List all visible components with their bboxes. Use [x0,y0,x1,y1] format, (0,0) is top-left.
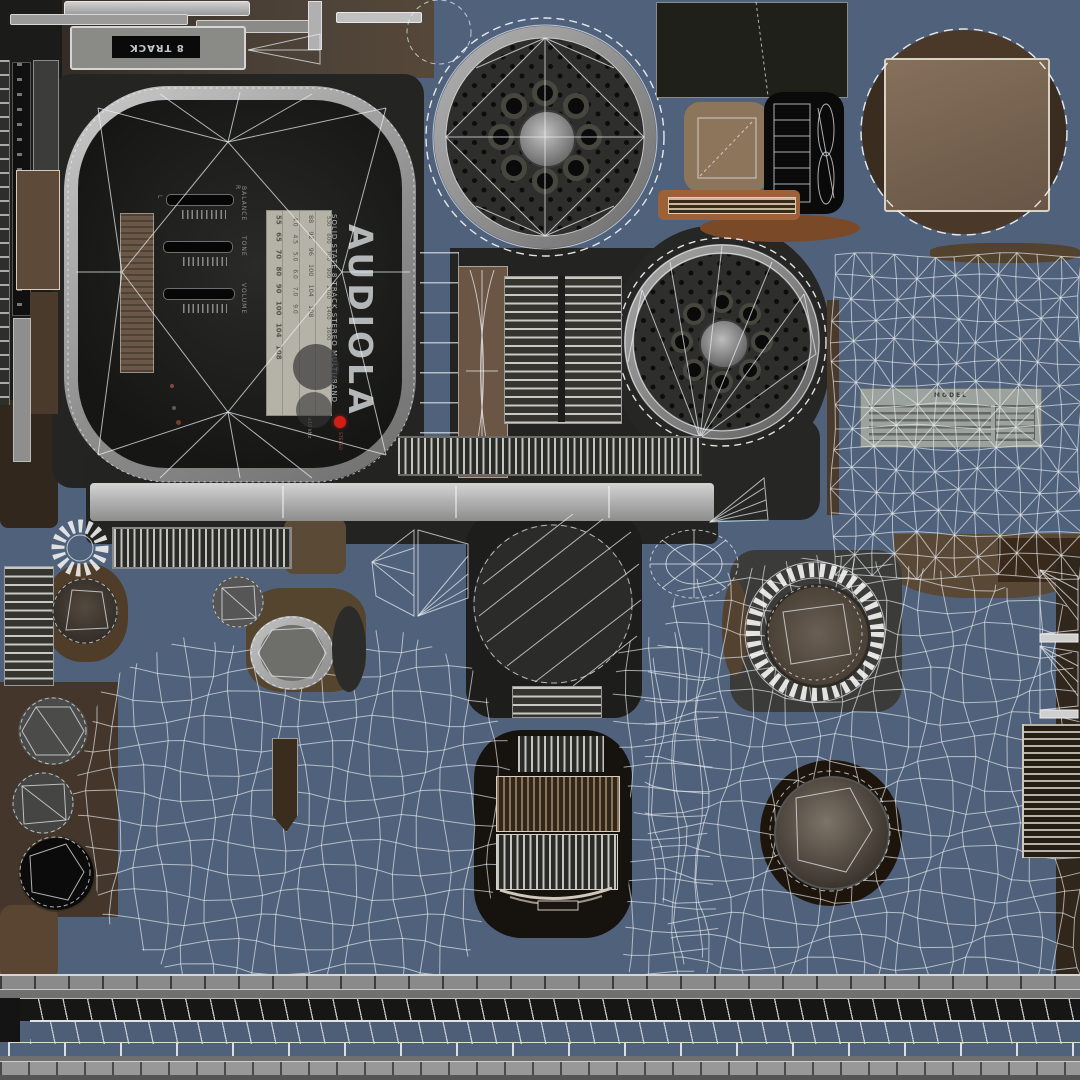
bottom-strip-segmented [0,1061,1080,1076]
disc-b-wire [12,772,74,834]
hatched-disc-wire [473,524,633,684]
bottom-strip-blue-slant [30,1020,1080,1044]
bottom-strip-black-slant [18,998,1080,1021]
ribbed-block-small [512,686,602,718]
top-bar-b [10,14,188,25]
bottom-strip-gray-ticks [0,976,1080,989]
bottom-strip-base [0,1075,1080,1080]
orange-trim-bars [668,197,796,214]
handle-seam [455,486,457,518]
vent-comb-left [112,527,292,569]
unit-comb-wood [496,776,620,832]
fan-piece [368,524,474,622]
bottom-strip-wood [8,1042,1080,1057]
ring-knob-small-wire [250,616,334,690]
handle-seam [282,486,284,518]
right-stripe-block [1022,724,1080,858]
top-black-panel-wire [656,2,846,96]
mesh-strip-horizontal [420,252,459,460]
uv-texture-atlas: MODEL 8 TRACK BALANCE TONE VOLUME L R 55… [0,0,1080,1080]
eighttrack-slot: 8 TRACK [112,36,200,58]
cap-ellipse [646,526,742,604]
face-wireframe [60,80,420,490]
brushed-knob-wire [766,768,894,894]
dark-crescent [332,606,366,692]
trapezoid-knob-wire [52,578,118,644]
tan-square-wire [684,102,768,192]
right-edge-fans [1038,568,1080,728]
woodpanel-dashed-ring [858,26,1070,238]
gear-knob-wire [765,584,865,682]
eighttrack-label: 8 TRACK [129,42,184,53]
bottom-strip-left-wedge [0,998,20,1042]
unit-trim-arcs [494,882,620,912]
left-strip-1 [0,60,10,405]
top-pointed-piece [246,32,326,68]
ribbed-block-gap [558,276,565,422]
backpanel-mesh [833,255,1080,577]
hatch-block [4,566,54,686]
speaker2-wireframe [612,232,832,452]
left-wood-rect [16,170,60,290]
unit-comb-top [518,736,604,772]
lowerleft-wood-foot [0,905,58,981]
top-dashed-ring-fragment [404,2,474,70]
vent-comb-wide [398,436,702,476]
handle-end-cone [706,472,772,530]
left-wood-rect-dark [30,292,58,414]
handle-bar[interactable] [90,483,714,521]
left-strip-3 [33,60,59,178]
wood-pin [272,738,298,832]
disc-a-wire [18,697,88,765]
toothed-ring [48,516,112,580]
handle-seam [608,486,610,518]
disc-black-wire [18,836,92,908]
left-strip-4 [13,318,31,462]
